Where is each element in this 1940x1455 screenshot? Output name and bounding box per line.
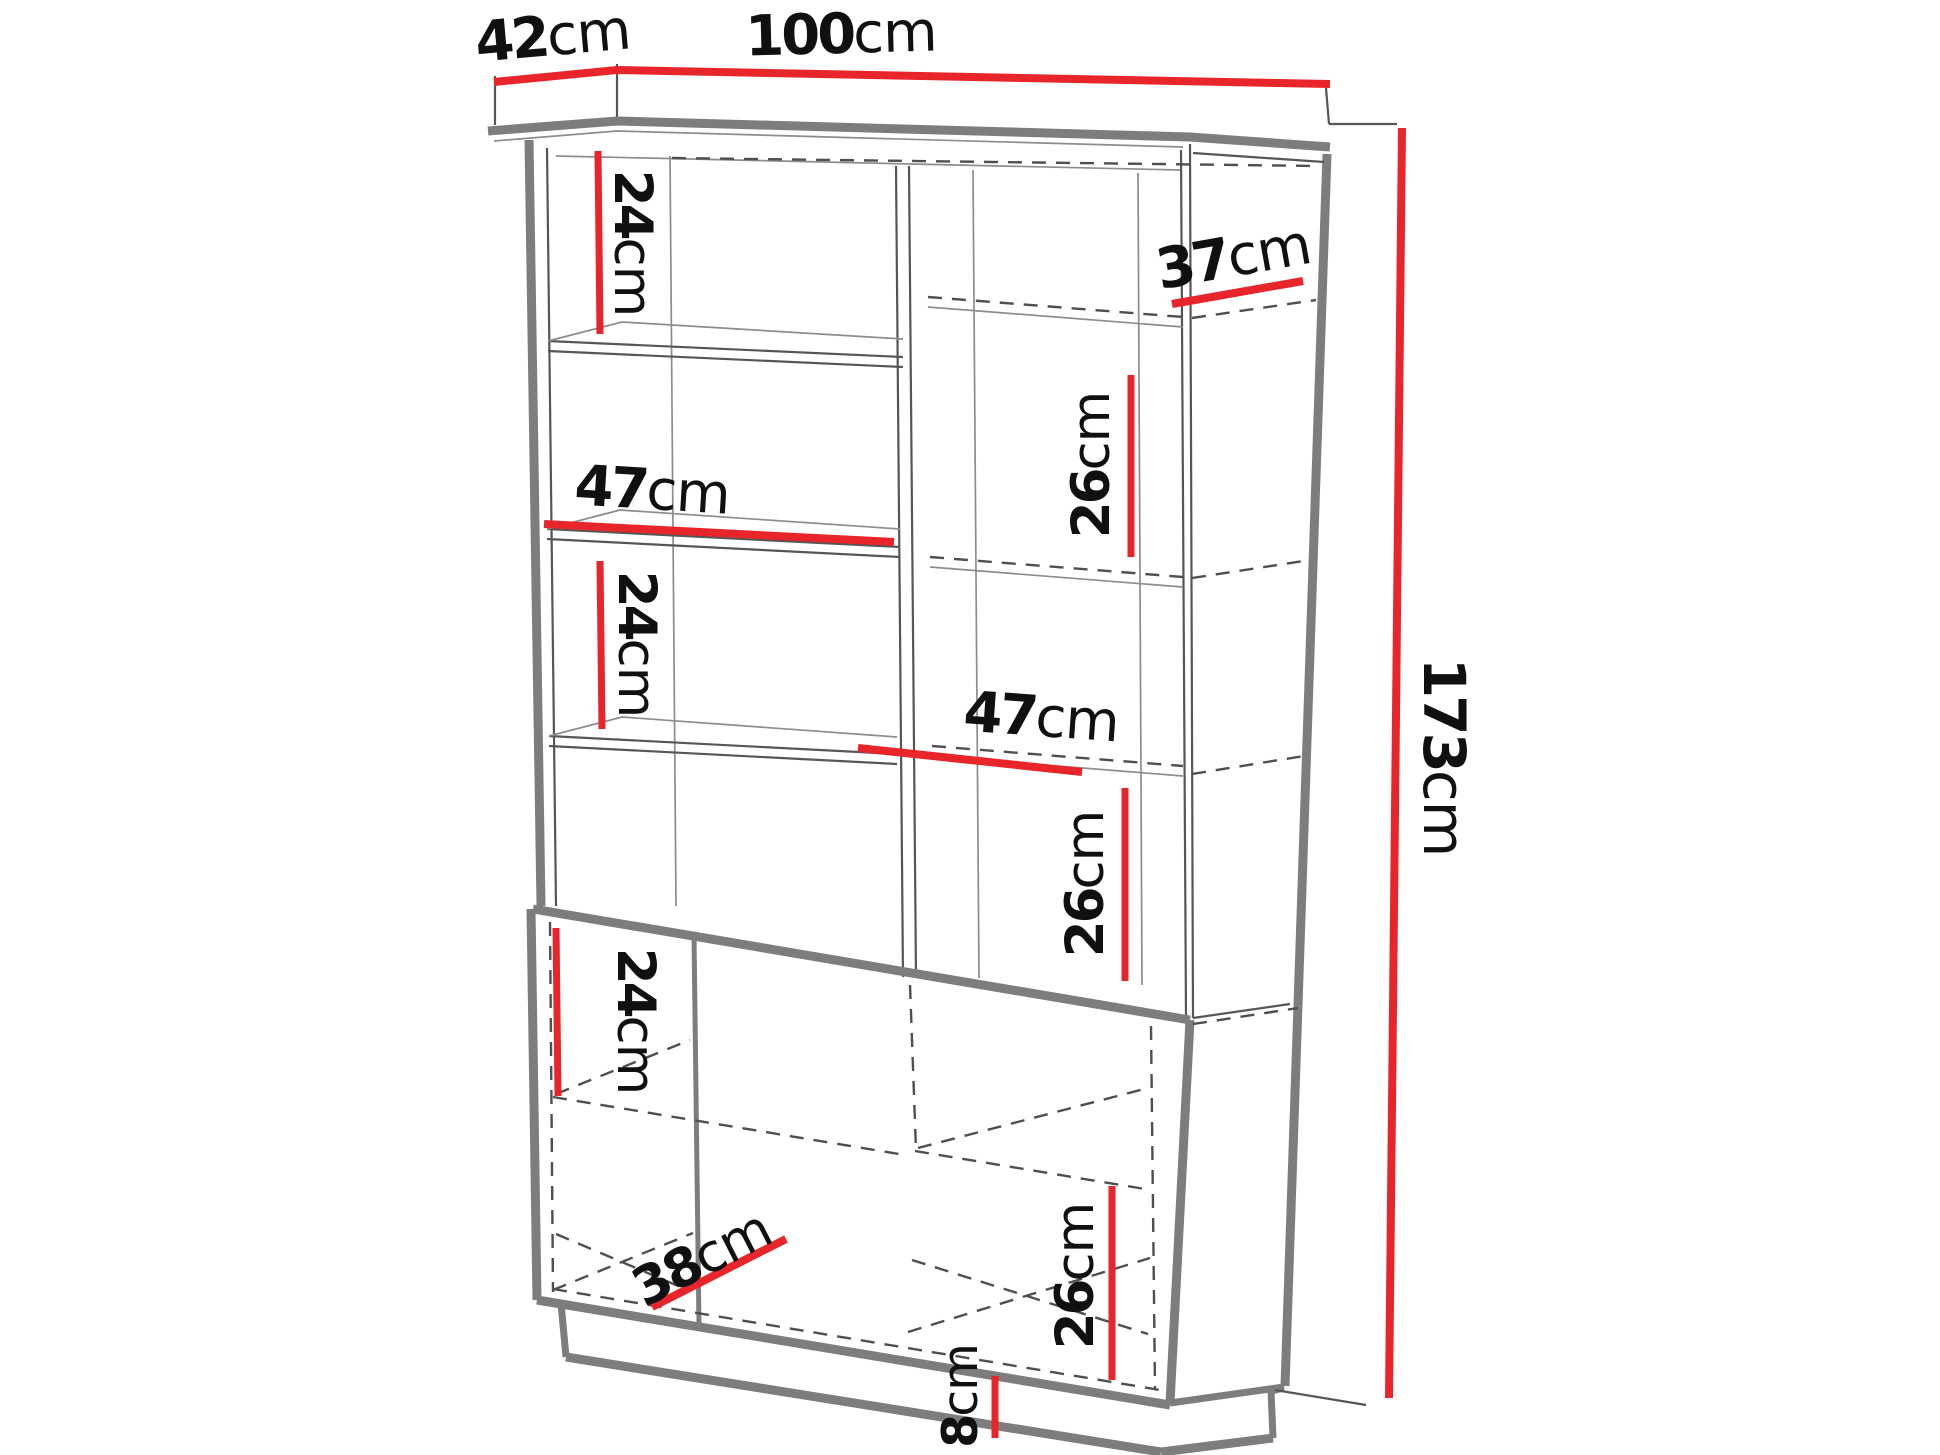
label-lower-shelf-depth: 38cm [623,1198,781,1319]
label-left-shelf-width: 47cm [573,453,732,527]
label-right-shelf-width: 47cm [962,680,1121,756]
cabinet-carcass [529,140,1327,1386]
label-upper-left-shelf-height: 24cm [602,170,663,317]
label-side-shelf-depth: 37cm [1151,212,1315,303]
door-left-edge [531,909,537,1300]
dim-line-24-upper [598,151,600,334]
plinth-right-edge [1271,1391,1273,1438]
dim-line-24-middle [600,561,602,729]
center-divider-right [909,166,916,978]
label-top-width: 100cm [744,0,937,70]
label-lower-left-shelf-height: 24cm [605,948,666,1095]
dim-line-top-42-100 [494,70,1330,84]
right-shelf-1-side-hidden [1192,300,1316,318]
shelf-1-front-top [548,341,903,357]
hidden-shelf-left [553,1097,905,1155]
plinth-side-bottom [1161,1438,1273,1452]
label-lower-right-shelf-height: 26cm [1045,1203,1106,1350]
side-top-edge [1193,153,1324,162]
label-plinth-height: 8cm [932,1344,989,1448]
center-divider-left [896,166,903,977]
plinth-left-edge [561,1303,566,1357]
right-shelf-2-side-hidden [1192,560,1310,578]
furniture-dimension-diagram: 42cm 100cm 24cm 47cm 24cm 37cm 26cm 47cm… [0,0,1940,1455]
divider-back-line [973,170,979,978]
height-ext-top-vertical [1326,88,1329,124]
hidden-shelf-right [915,1151,1151,1190]
hidden-diagonal-upper-right [918,1088,1148,1148]
right-shelf-1-hidden [928,297,1183,317]
right-back-inner-line [1138,173,1142,985]
right-shelf-1-front [928,307,1183,327]
dim-line-47-right [858,748,1082,772]
shelf-1-front-bottom [548,351,903,367]
door-right-edge [1170,1020,1190,1403]
left-outer-edge [529,140,541,906]
plinth-bottom-edge [566,1357,1161,1452]
label-upper-right-shelf-height: 26cm [1061,392,1122,539]
shelf-3-front-bottom [549,746,897,764]
right-shelf-2-front [930,567,1183,587]
right-back-edge [1285,154,1327,1386]
label-mid-right-shelf-height: 26cm [1055,811,1116,958]
label-total-height: 173cm [1410,658,1478,856]
right-shelf-3-side-hidden [1192,756,1304,774]
back-top-edge-hidden [672,158,1318,166]
door-side-bottom [1170,1387,1284,1403]
hidden-center-divider [910,985,916,1150]
hidden-left-wall [550,922,553,1292]
diagram-canvas: 42cm 100cm 24cm 47cm 24cm 37cm 26cm 47cm… [0,0,1940,1455]
label-mid-left-shelf-height: 24cm [606,571,667,718]
label-top-depth: 42cm [473,0,633,76]
hidden-right-wall [1151,1026,1155,1388]
shelf-3-front-top [549,736,897,754]
height-ext-bottom [1275,1390,1366,1405]
right-shelf-2-hidden [930,557,1183,577]
plinth-step [537,1300,561,1303]
top-panel-bottom-edge [488,121,1330,147]
dim-line-24-lower [556,928,558,1096]
dim-line-173-height [1389,128,1402,1398]
